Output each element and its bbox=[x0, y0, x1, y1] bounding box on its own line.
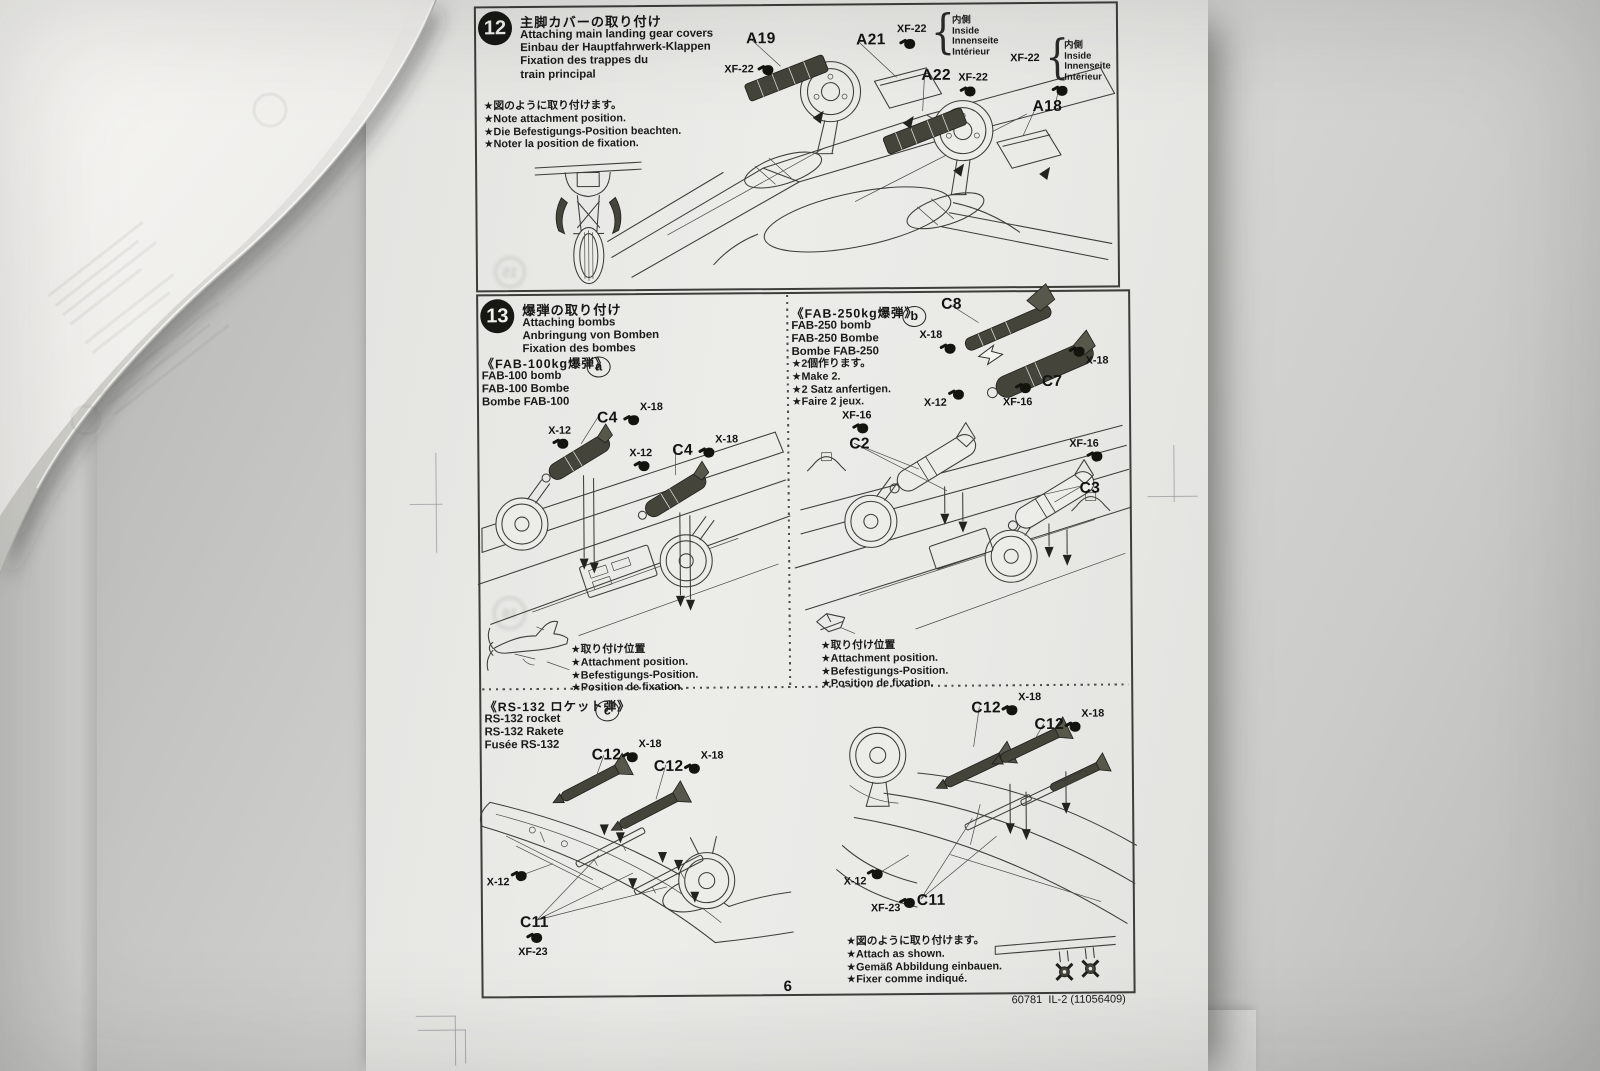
attachment-position-part-icon bbox=[811, 599, 855, 635]
part-label-a22: A22 bbox=[921, 67, 951, 85]
paint-dot-icon bbox=[904, 898, 915, 908]
crop-mark-bottom-v2 bbox=[465, 1030, 467, 1064]
paint-label-x12: X-12 bbox=[629, 447, 652, 459]
rs132-rocket bbox=[606, 781, 692, 841]
paint-dot-icon bbox=[1056, 86, 1067, 96]
attach-en: ★Attachment position. bbox=[571, 655, 698, 669]
crop-mark-bottom-h2 bbox=[418, 1030, 466, 1032]
paint-label-xf23: XF-23 bbox=[518, 946, 547, 958]
section-a-attach-notes: ★取り付け位置 ★Attachment position. ★Befestigu… bbox=[571, 643, 699, 695]
part-label-c8: C8 bbox=[941, 296, 962, 314]
paint-label-x18: X-18 bbox=[1081, 708, 1104, 720]
paint-label-x12: X-12 bbox=[548, 425, 571, 437]
step-13-title-en: Attaching bombs bbox=[522, 316, 659, 330]
paint-label-xf22: XF-22 bbox=[897, 23, 926, 35]
step-13-titles: Attaching bombs Anbringung von Bomben Fi… bbox=[522, 316, 659, 357]
paint-label-xf22: XF-22 bbox=[958, 71, 987, 83]
paint-label-x18: X-18 bbox=[715, 433, 738, 445]
final-de: ★Gemäß Abbildung einbauen. bbox=[846, 960, 1002, 974]
rs132-rocket bbox=[931, 741, 1017, 799]
attach-jp: ★取り付け位置 bbox=[571, 643, 698, 657]
crop-mark-right-horizontal bbox=[1148, 496, 1198, 498]
paint-dot-icon bbox=[762, 65, 773, 75]
step-12-number-badge: 12 bbox=[478, 11, 512, 45]
paint-dot-icon bbox=[1074, 347, 1085, 357]
step-13-title-de: Anbringung von Bomben bbox=[522, 329, 659, 343]
rocket-side-view-diagram bbox=[989, 927, 1119, 988]
part-label-c2: C2 bbox=[849, 435, 870, 453]
page-number: 6 bbox=[783, 978, 791, 995]
section-a-en: FAB-100 bomb bbox=[482, 370, 569, 384]
part-label-c4: C4 bbox=[672, 442, 693, 460]
paint-dot-icon bbox=[872, 869, 883, 879]
crop-mark-bottom-h1 bbox=[416, 1016, 456, 1018]
final-fr: ★Fixer comme indiqué. bbox=[846, 973, 1002, 987]
final-en: ★Attach as shown. bbox=[846, 947, 1002, 961]
paint-dot-icon bbox=[557, 439, 568, 449]
section-a-de: FAB-100 Bombe bbox=[482, 383, 569, 397]
paint-dot-icon bbox=[945, 344, 956, 354]
wheel-right bbox=[660, 517, 715, 587]
part-label-c11: C11 bbox=[917, 892, 946, 910]
rs132-left-wing-diagram bbox=[480, 736, 794, 980]
rs132-rocket bbox=[1047, 753, 1112, 798]
part-label-c12: C12 bbox=[592, 746, 622, 764]
section-b-de: FAB-250 Bombe bbox=[791, 332, 878, 346]
rocket-rear-view bbox=[1056, 964, 1072, 980]
sway-brace-c2 bbox=[807, 453, 845, 471]
attach-en: ★Attachment position. bbox=[821, 652, 948, 666]
paint-label-xf23: XF-23 bbox=[871, 902, 900, 914]
inside-note-1: 内側 Inside Innenseite Intérieur bbox=[952, 14, 999, 56]
part-label-c12: C12 bbox=[654, 758, 684, 776]
section-c-badge: c bbox=[595, 700, 619, 721]
rocket-rear-view bbox=[1082, 961, 1098, 977]
inside-fr: Intérieur bbox=[952, 46, 998, 57]
final-jp: ★図のように取り付けます。 bbox=[846, 934, 1002, 948]
part-label-c3: C3 bbox=[1080, 480, 1101, 498]
wheel-left bbox=[496, 480, 551, 550]
crop-mark-bottom-v1 bbox=[455, 1016, 457, 1066]
part-label-c7: C7 bbox=[1042, 373, 1063, 391]
paint-label-xf16: XF-16 bbox=[1069, 438, 1098, 450]
paint-dot-icon bbox=[1069, 722, 1080, 732]
paint-label-x18: X-18 bbox=[1018, 691, 1041, 703]
part-label-c12: C12 bbox=[1034, 716, 1064, 734]
attachment-position-plane-icon bbox=[485, 614, 570, 687]
part-label-a19: A19 bbox=[746, 30, 776, 48]
wheel-left bbox=[845, 477, 900, 547]
part-label-a18: A18 bbox=[1033, 98, 1063, 116]
paint-dot-icon bbox=[1091, 452, 1102, 462]
paint-label-x18: X-18 bbox=[1086, 354, 1109, 366]
paint-label-x18: X-18 bbox=[919, 329, 942, 341]
section-b-en: FAB-250 bomb bbox=[791, 319, 878, 333]
paint-dot-icon bbox=[516, 871, 527, 881]
crop-mark-right-vertical bbox=[1173, 445, 1175, 502]
make-jp: ★2個作ります。 bbox=[792, 357, 891, 371]
wheel bbox=[850, 727, 907, 806]
part-label-c11: C11 bbox=[520, 914, 549, 932]
product-code: 60781 IL-2 (11056409) bbox=[1012, 993, 1126, 1006]
paint-label-xf22: XF-22 bbox=[1010, 52, 1039, 64]
section-b-titles: FAB-250 bomb FAB-250 Bombe Bombe FAB-250 bbox=[791, 319, 879, 359]
paint-dot-icon bbox=[953, 390, 964, 400]
fab250-bomb-c7 bbox=[980, 329, 1101, 404]
launch-rail bbox=[575, 827, 648, 874]
paint-dot-icon bbox=[904, 39, 915, 49]
attach-fr: ★Position de fixation. bbox=[571, 681, 698, 695]
attach-de: ★Befestigungs-Position. bbox=[571, 668, 698, 682]
paint-label-x18: X-18 bbox=[639, 738, 662, 750]
paint-dot-icon bbox=[857, 423, 868, 433]
paint-dot-icon bbox=[689, 764, 700, 774]
paint-label-x12: X-12 bbox=[487, 876, 510, 888]
paint-label-xf16: XF-16 bbox=[842, 409, 871, 421]
paint-dot-icon bbox=[1020, 383, 1031, 393]
make-en: ★Make 2. bbox=[792, 370, 891, 384]
attach-de: ★Befestigungs-Position. bbox=[821, 664, 948, 678]
paint-dot-icon bbox=[531, 933, 542, 943]
photographed-instruction-sheet: 15 16 12 主脚カバーの取り付け Attaching main landi… bbox=[0, 0, 1600, 1071]
paint-label-x18: X-18 bbox=[701, 750, 724, 762]
part-label-c12: C12 bbox=[971, 699, 1001, 717]
paint-label-xf22: XF-22 bbox=[724, 63, 753, 75]
bomb-cover-c8 bbox=[956, 283, 1060, 352]
attach-jp: ★取り付け位置 bbox=[821, 639, 948, 653]
inside-fr: Intérieur bbox=[1064, 71, 1110, 82]
make-de: ★2 Satz anfertigen. bbox=[792, 383, 891, 397]
section-c-en: RS-132 rocket bbox=[484, 713, 563, 727]
part-label-c4: C4 bbox=[597, 409, 618, 427]
paint-dot-icon bbox=[964, 87, 975, 97]
curled-page-corner bbox=[0, 0, 470, 660]
paint-label-x18: X-18 bbox=[640, 401, 663, 413]
paint-dot-icon bbox=[1006, 705, 1017, 715]
inside-note-2: 内側 Inside Innenseite Intérieur bbox=[1064, 39, 1111, 81]
paint-label-x12: X-12 bbox=[844, 875, 867, 887]
step-13-number-badge: 13 bbox=[480, 299, 514, 333]
section-c-final-notes: ★図のように取り付けます。 ★Attach as shown. ★Gemäß A… bbox=[846, 934, 1002, 986]
paint-dot-icon bbox=[638, 461, 649, 471]
rs132-right-wing-diagram bbox=[819, 683, 1137, 939]
paint-dot-icon bbox=[703, 448, 714, 458]
section-b-attach-notes: ★取り付け位置 ★Attachment position. ★Befestigu… bbox=[821, 639, 949, 691]
gear-cover-a18 bbox=[997, 130, 1061, 169]
section-b-make-notes: ★2個作ります。 ★Make 2. ★2 Satz anfertigen. ★F… bbox=[792, 357, 891, 409]
section-a-badge: a bbox=[587, 356, 611, 377]
paint-dot-icon bbox=[628, 415, 639, 425]
paint-dot-icon bbox=[627, 752, 638, 762]
part-label-a21: A21 bbox=[856, 31, 886, 49]
